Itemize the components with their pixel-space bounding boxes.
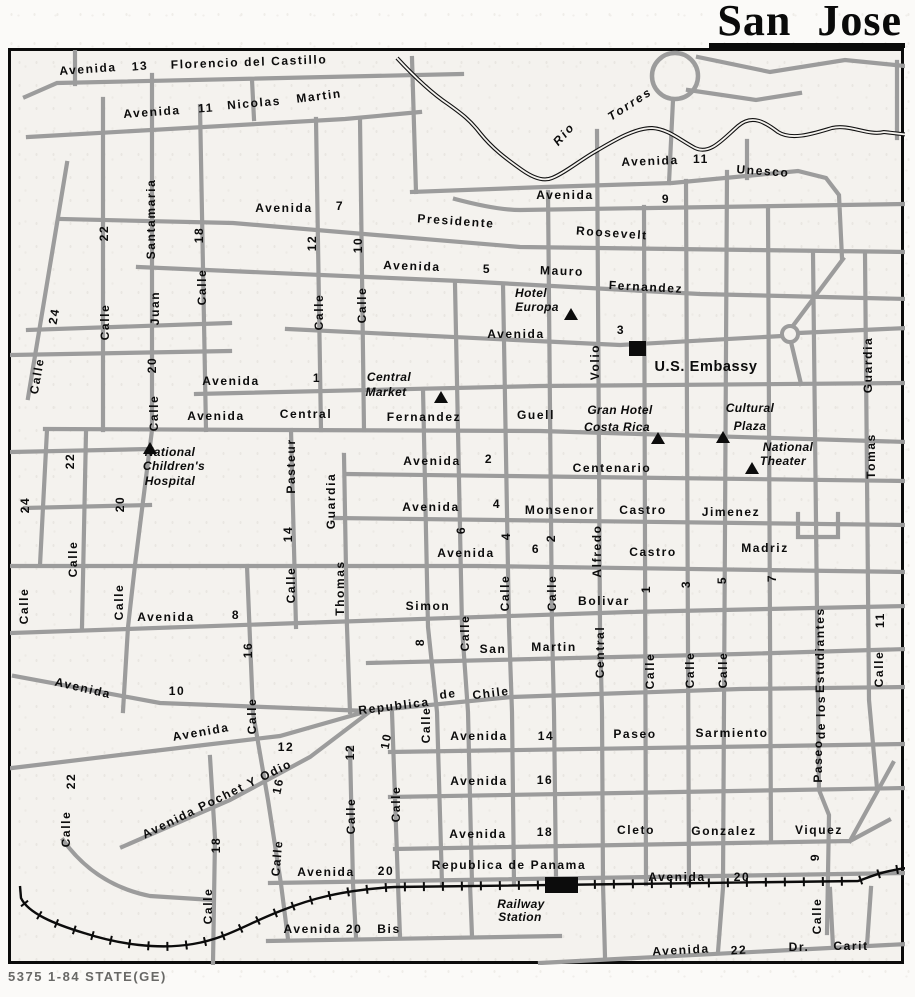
- railway-tick: [310, 896, 313, 905]
- map-canvas: San Jose: [0, 0, 915, 997]
- railway-tick: [110, 936, 112, 945]
- map-caption: 5375 1-84 STATE(GE): [8, 969, 167, 984]
- railway-tick: [186, 941, 187, 950]
- roundabout-large: [652, 53, 698, 99]
- map-graphics: [0, 0, 915, 997]
- us-embassy-marker: [629, 341, 646, 356]
- railway-tick: [73, 926, 76, 935]
- railway-tick: [91, 931, 94, 940]
- poi-markers: [143, 308, 759, 893]
- railway-tick: [386, 883, 387, 892]
- railway-tick: [366, 885, 367, 894]
- railway-tick: [129, 939, 130, 948]
- railway-tick: [329, 891, 331, 900]
- railway-tick: [347, 887, 348, 896]
- railway-tick: [148, 941, 149, 950]
- roundabout-small: [782, 326, 798, 342]
- railway-station-marker: [545, 877, 578, 893]
- national-theater-marker: [745, 462, 759, 474]
- road-network: [12, 52, 907, 963]
- railway-tick: [204, 937, 206, 946]
- railway-tick: [877, 870, 880, 879]
- hotel-europa-marker: [564, 308, 578, 320]
- railway-tick: [859, 876, 862, 884]
- central-market-marker: [434, 391, 448, 403]
